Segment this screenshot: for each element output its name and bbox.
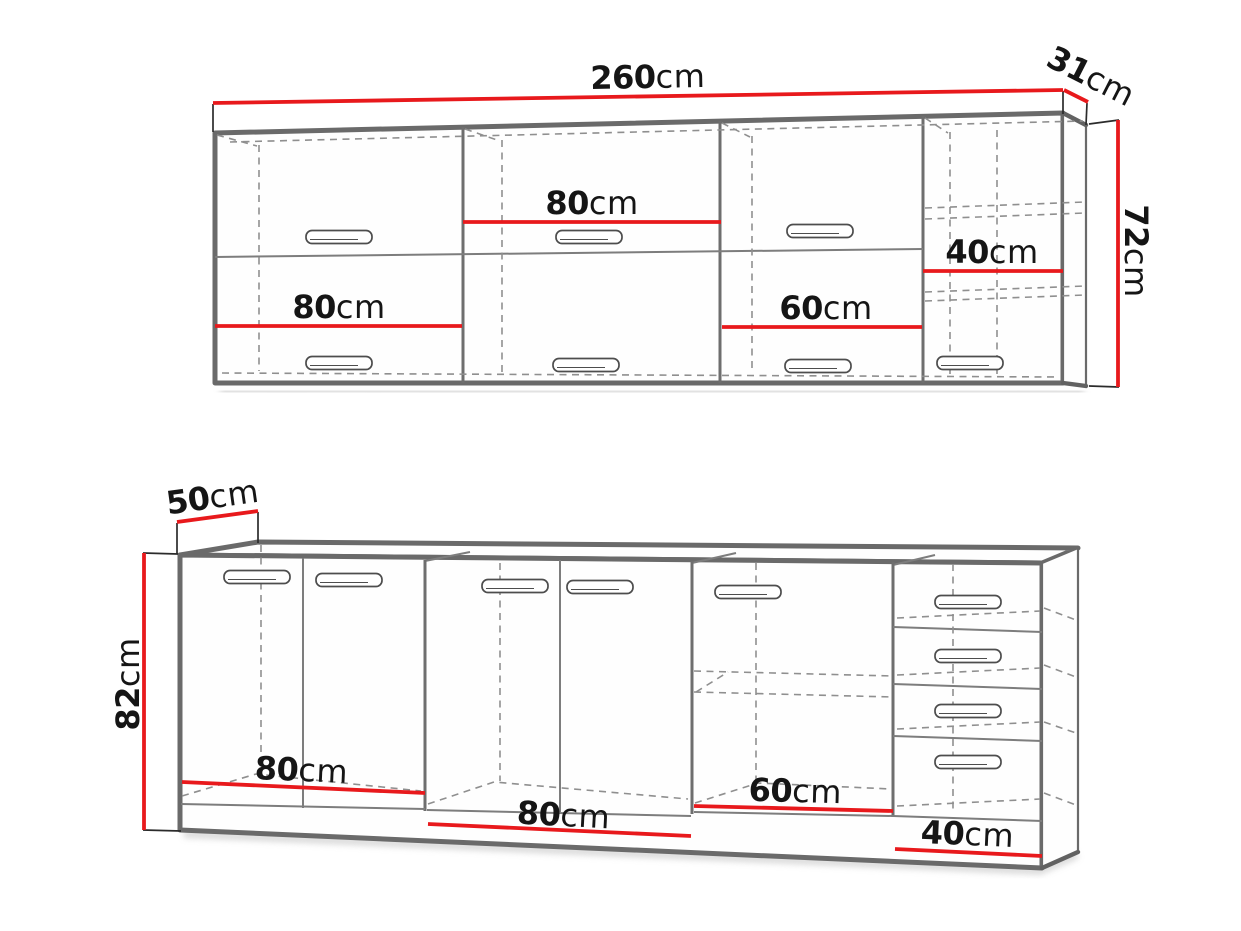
door-handle-icon — [785, 360, 851, 373]
dim-label-base-section-1: 80cm — [254, 749, 349, 791]
cabinet-dimension-diagram: 260cm 31cm 72cm 80cm 80cm 60cm 40cm — [0, 0, 1241, 931]
dim-label-base-height: 82cm — [109, 637, 147, 730]
dim-label-base-section-4: 40cm — [920, 813, 1015, 855]
dim-label-total-width: 260cm — [590, 57, 706, 97]
base-cabinet-row: 50cm 82cm 80cm 80cm 60cm 40cm — [109, 472, 1078, 871]
dim-extension-tick — [143, 830, 181, 831]
door-handle-icon — [306, 357, 372, 370]
dim-label-wall-section-2: 80cm — [545, 184, 638, 222]
drawer-handle-icon — [935, 756, 1001, 769]
wall-side-bottom-edge — [1063, 383, 1086, 386]
dim-label-base-depth: 50cm — [164, 472, 262, 523]
dim-label-wall-height: 72cm — [1117, 204, 1155, 297]
door-handle-icon — [553, 359, 619, 372]
dim-extension-tick — [1089, 386, 1119, 387]
wall-cabinet-shadow — [220, 391, 1084, 392]
door-handle-icon — [937, 357, 1003, 370]
drawer-handle-icon — [935, 596, 1001, 609]
door-handle-icon — [715, 586, 781, 599]
dim-extension-tick — [1086, 103, 1087, 125]
drawer-handle-icon — [935, 650, 1001, 663]
dim-label-wall-depth: 31cm — [1041, 38, 1141, 114]
diagram-svg: 260cm 31cm 72cm 80cm 80cm 60cm 40cm — [0, 0, 1241, 931]
wall-front-face — [215, 113, 1063, 383]
base-front-face — [180, 555, 1042, 868]
dim-extension-tick — [1089, 120, 1119, 124]
door-handle-icon — [787, 225, 853, 238]
dim-label-wall-section-3: 60cm — [779, 289, 872, 327]
dim-label-base-section-3: 60cm — [748, 771, 842, 811]
dim-label-wall-section-4: 40cm — [945, 233, 1038, 271]
dim-extension-tick — [143, 553, 178, 554]
door-handle-icon — [306, 231, 372, 244]
door-handle-icon — [316, 574, 382, 587]
door-handle-icon — [556, 231, 622, 244]
door-handle-icon — [567, 581, 633, 594]
drawer-handle-icon — [935, 705, 1001, 718]
dim-label-wall-section-1: 80cm — [292, 288, 385, 326]
wall-right-side-panel — [1063, 113, 1086, 386]
door-handle-icon — [224, 571, 290, 584]
dim-label-base-section-2: 80cm — [516, 794, 611, 837]
wall-cabinet-row: 260cm 31cm 72cm 80cm 80cm 60cm 40cm — [213, 38, 1155, 392]
door-handle-icon — [482, 580, 548, 593]
base-right-side-panel — [1042, 548, 1078, 868]
